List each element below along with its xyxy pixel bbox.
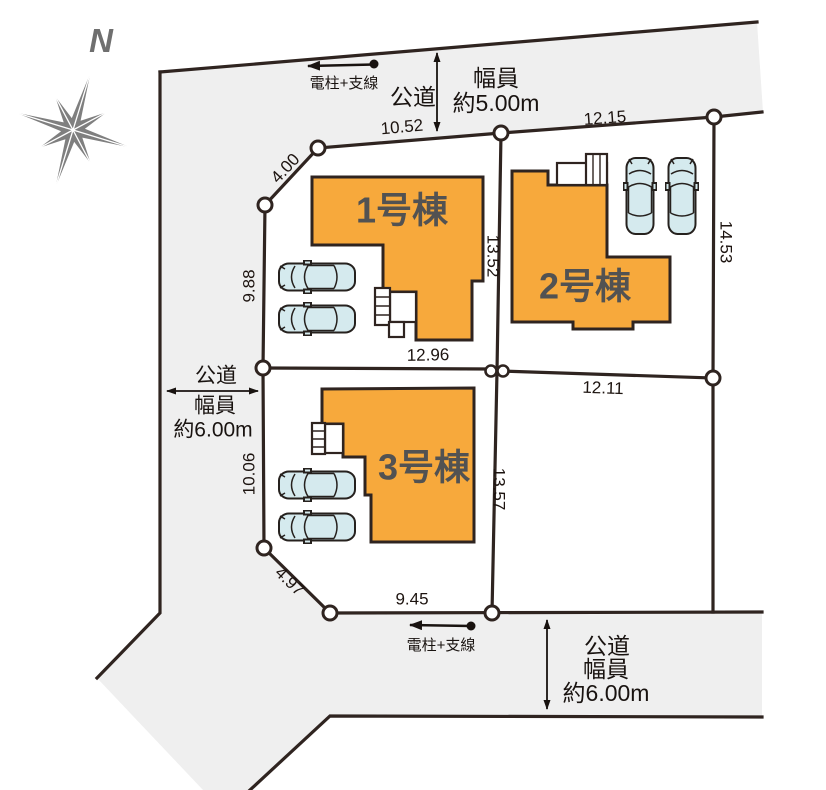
road-outer-edge-bottom: [250, 716, 762, 790]
boundary-point: [258, 198, 272, 212]
dim-center-lower: 13.57: [490, 468, 509, 511]
dim-left-lower: 10.06: [239, 453, 258, 496]
boundary-point: [498, 366, 509, 377]
top-road-width-1: 幅員: [473, 65, 519, 91]
bottom-road-width-1: 幅員: [583, 656, 629, 682]
building-1-entrance: [390, 292, 416, 322]
dim-left-upper: 9.88: [239, 269, 258, 302]
left-road-name: 公道: [195, 365, 237, 388]
utility-label-bottom: 電柱+支線: [407, 637, 476, 654]
compass-split-lines: [16, 73, 131, 188]
building-1-label: 1号棟: [356, 190, 449, 231]
car-icon: [279, 469, 355, 502]
dim-middle-right: 12.11: [582, 378, 624, 398]
bottom-road-width-2: 約6.00m: [563, 680, 650, 706]
boundary-point: [486, 366, 497, 377]
boundary-point: [257, 541, 271, 555]
site-plan: 1号棟 2号棟 3号棟: [0, 0, 826, 790]
car-icon: [279, 511, 355, 544]
dim-middle-left: 12.96: [407, 345, 450, 365]
boundary-point: [485, 606, 499, 620]
car-icon: [279, 303, 355, 336]
building-3-steps: [312, 423, 325, 454]
boundary-middle-right: [500, 371, 713, 378]
building-2-label: 2号棟: [539, 266, 632, 307]
cars-lot1: [279, 261, 355, 336]
boundary-point: [256, 361, 270, 375]
compass-north-label: N: [89, 22, 114, 59]
building-1-steps: [375, 288, 390, 325]
boundary-middle-left: [263, 368, 490, 369]
utility-guy-wire-arrow: [308, 65, 374, 67]
cars-lot2: [624, 158, 699, 234]
utility-label-top: 電柱+支線: [310, 75, 379, 92]
boundary-point: [494, 126, 508, 140]
top-road-name: 公道: [390, 84, 436, 110]
building-1-porch-notch: [389, 322, 404, 337]
dim-center-upper: 13.52: [484, 235, 503, 278]
left-road-width-2: 約6.00m: [173, 419, 252, 442]
building-3-entrance: [325, 424, 343, 453]
boundary-point: [707, 110, 721, 124]
car-icon: [279, 261, 355, 294]
site-plan-canvas: 1号棟 2号棟 3号棟: [0, 0, 826, 790]
boundary-point: [706, 371, 720, 385]
building-3-label: 3号棟: [378, 447, 471, 488]
car-icon: [666, 158, 699, 234]
dim-right-edge: 14.53: [717, 221, 736, 264]
building-2-steps: [586, 154, 607, 185]
utility-guy-wire-arrow: [410, 625, 471, 626]
road-outer-edge-left: [97, 72, 160, 678]
boundary-right-vertical: [713, 117, 714, 612]
dim-top-left: 10.52: [380, 116, 424, 139]
left-road-width-1: 幅員: [194, 395, 236, 418]
car-icon: [624, 158, 657, 234]
boundary-point: [323, 606, 337, 620]
compass: N: [16, 22, 131, 187]
top-road-width-2: 約5.00m: [453, 90, 540, 116]
dim-bottom-edge: 9.45: [395, 589, 428, 608]
boundary-point: [311, 141, 325, 155]
cars-lot3: [279, 469, 355, 544]
dim-top-right: 12.15: [583, 107, 627, 129]
